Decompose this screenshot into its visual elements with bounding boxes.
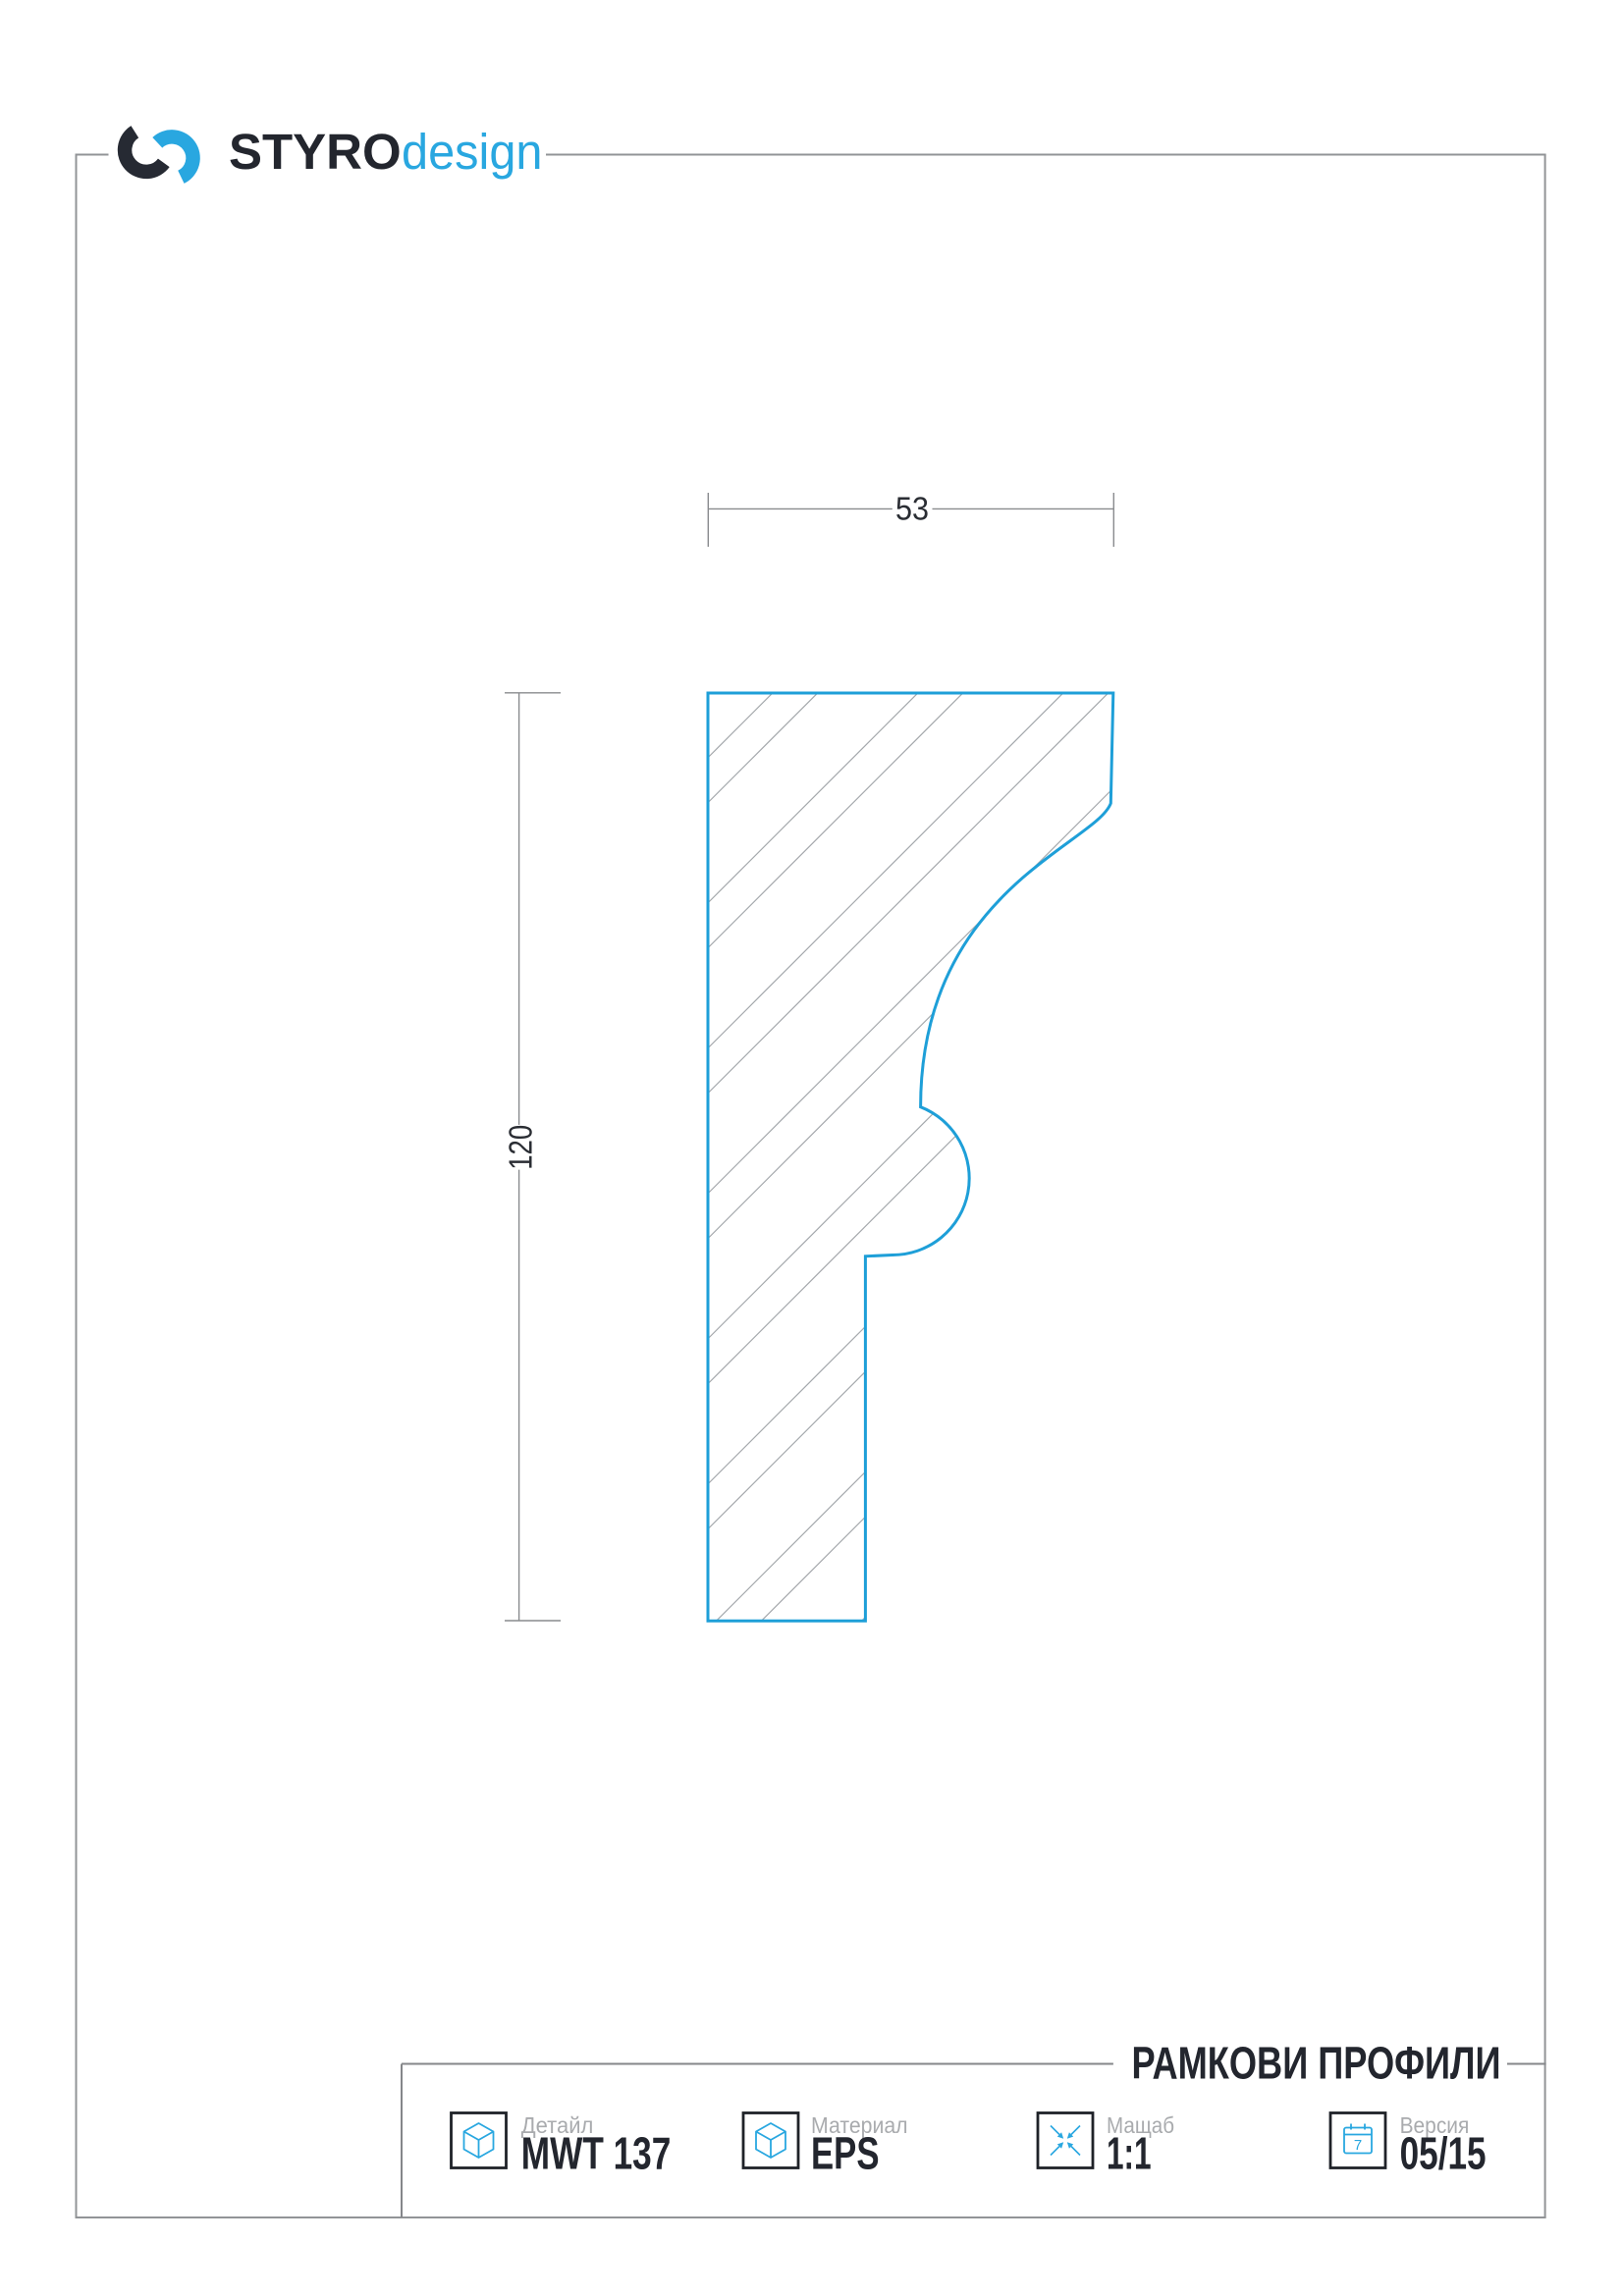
svg-text:53: 53: [895, 492, 929, 528]
svg-text:7: 7: [1354, 2137, 1362, 2154]
svg-text:05/15: 05/15: [1400, 2128, 1487, 2179]
svg-text:design: design: [402, 124, 543, 180]
svg-text:STYRO: STYRO: [229, 124, 402, 180]
svg-text:1:1: 1:1: [1107, 2128, 1152, 2179]
svg-text:120: 120: [504, 1125, 540, 1170]
svg-text:MWT 137: MWT 137: [521, 2128, 672, 2179]
svg-text:EPS: EPS: [811, 2128, 880, 2179]
svg-text:РАМКОВИ ПРОФИЛИ: РАМКОВИ ПРОФИЛИ: [1132, 2038, 1501, 2089]
